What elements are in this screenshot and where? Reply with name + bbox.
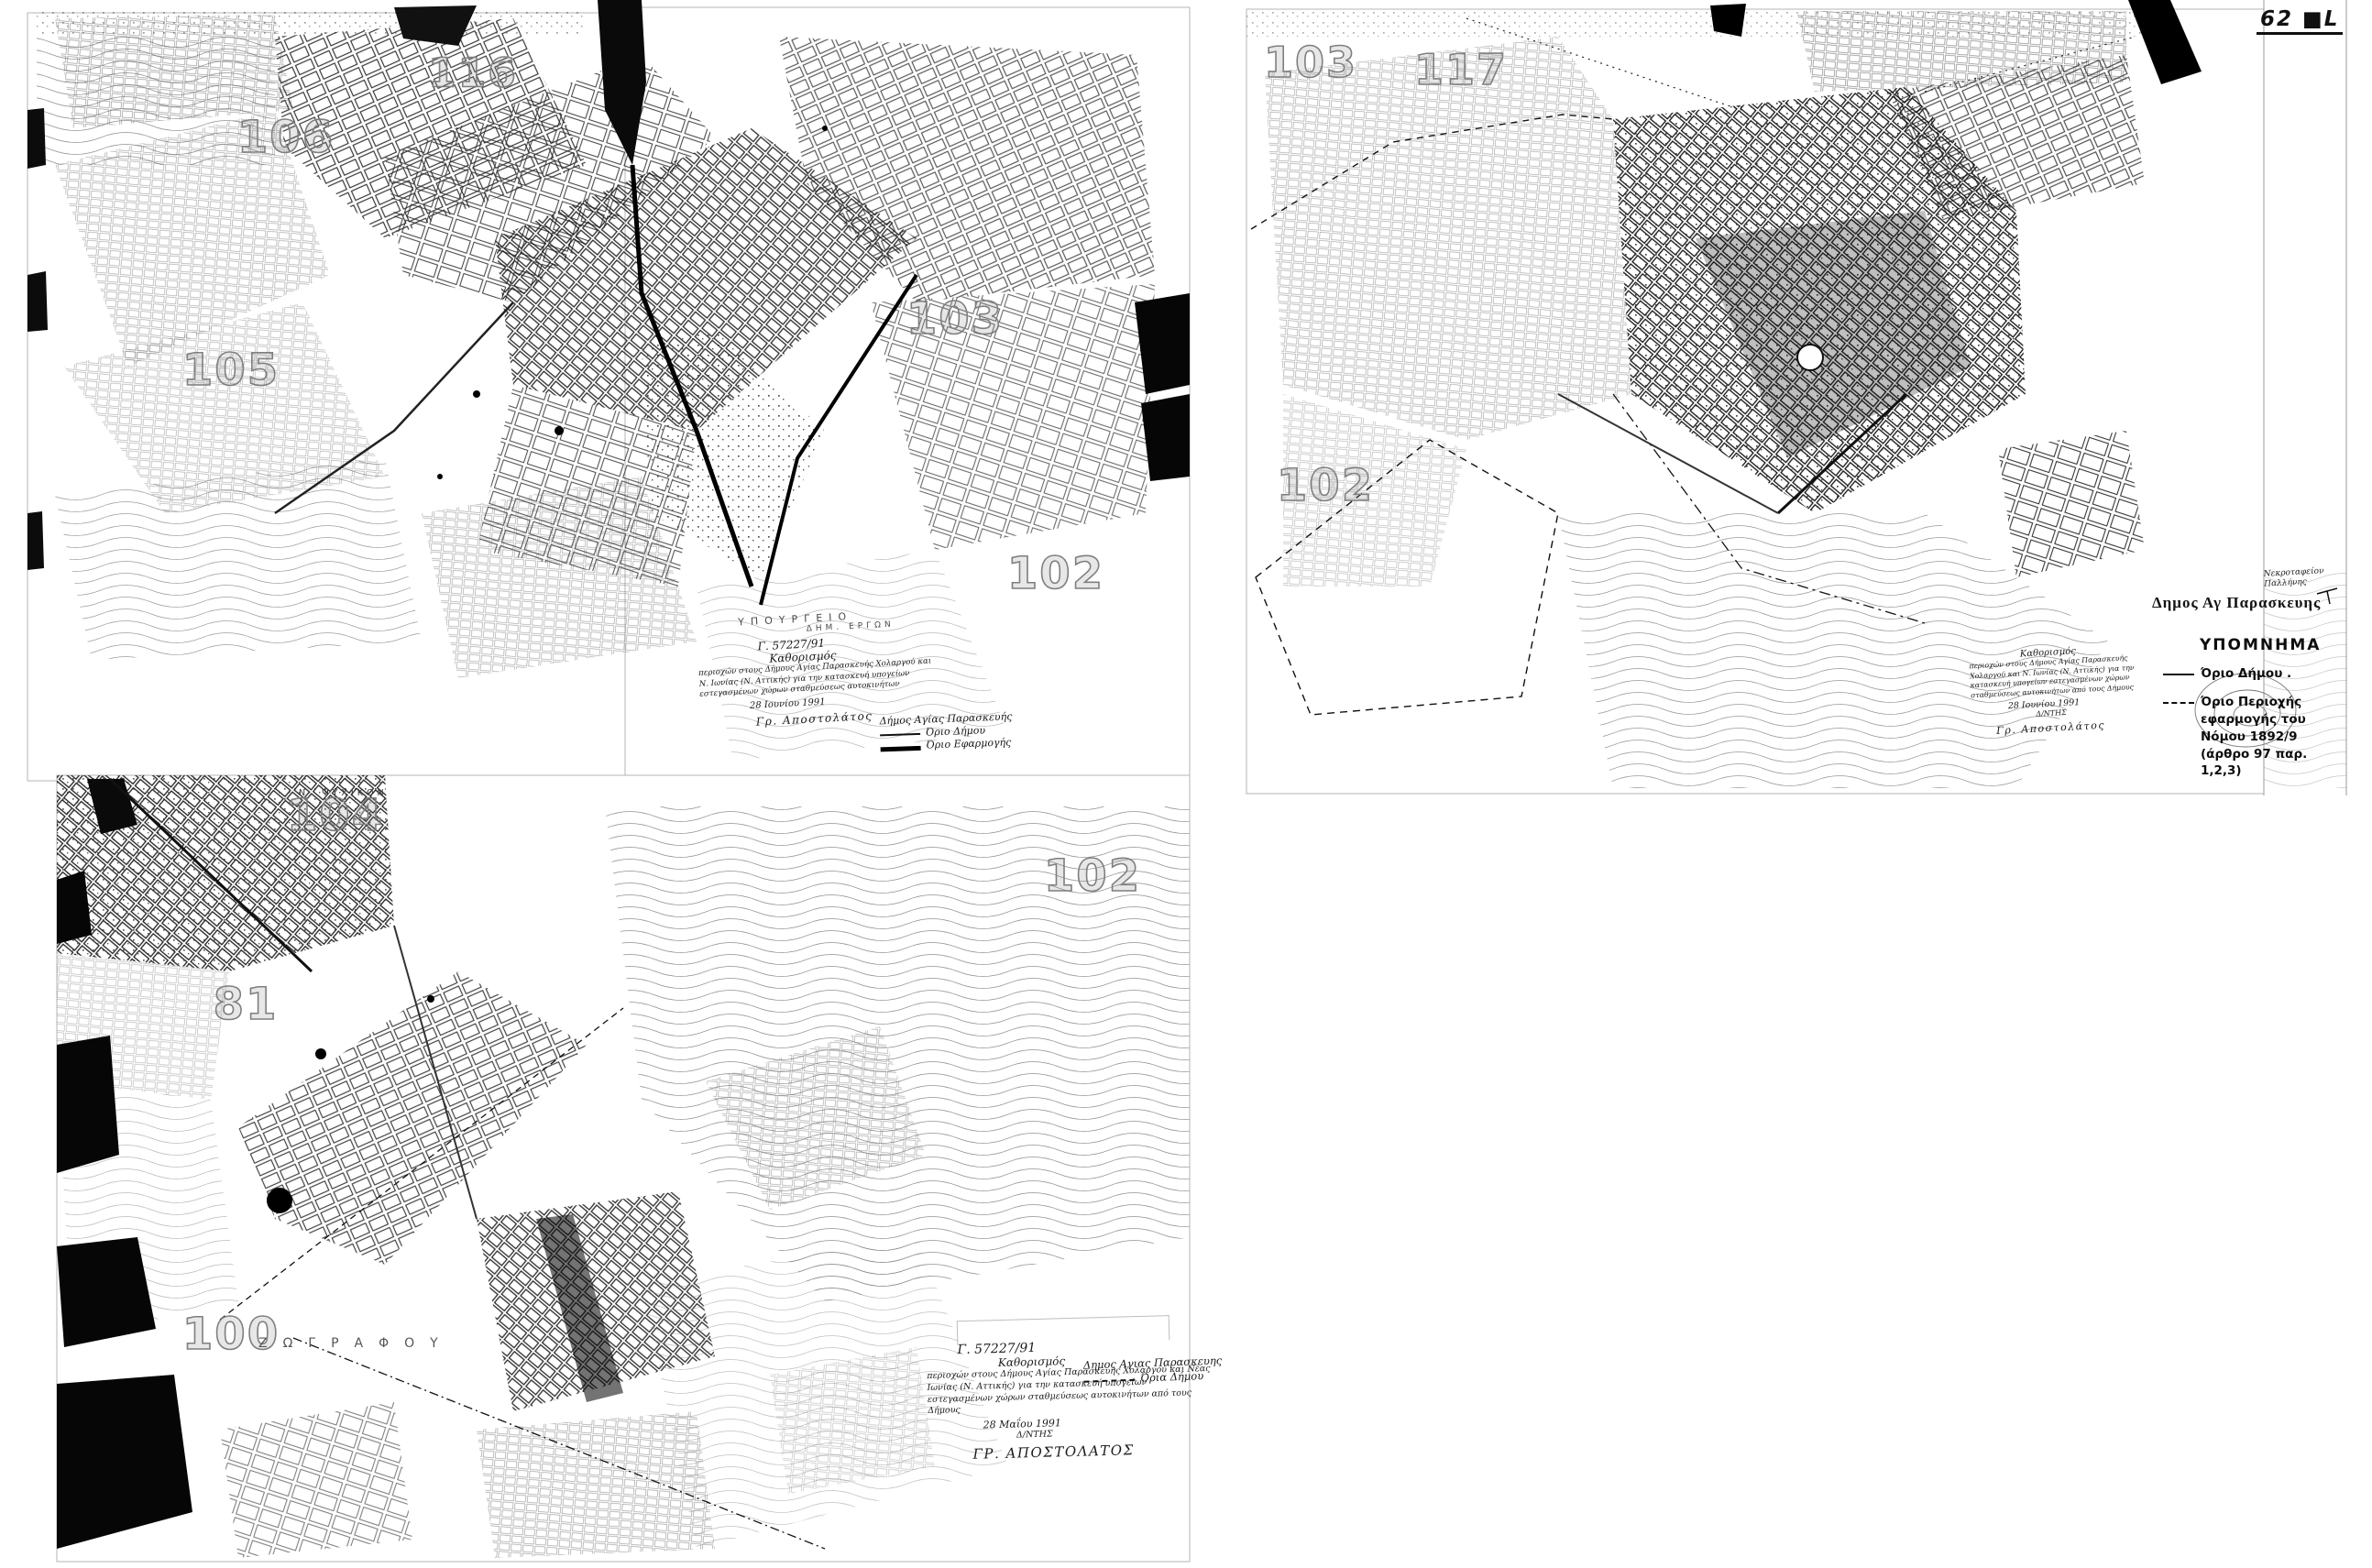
solid-line-symbol — [880, 733, 920, 737]
sheet-number-106: 106 — [237, 112, 335, 163]
approval-stamp-right-map: Καθορισμός περιοχών στους Δήμους Αγίας Π… — [1969, 642, 2161, 739]
legend-item-law-area-boundary: Όριο Περιοχής εφαρμογής του Νόμου 1892/9… — [2163, 694, 2343, 780]
legend-item-label: Όριο Δήμου . — [2201, 665, 2318, 683]
sheet-number-81: 81 — [214, 979, 279, 1030]
sheet-number-116: 116 — [428, 50, 518, 97]
legend: ΥΠΟΜΝΗΜΑ Όριο Δήμου . Όριο Περιοχής εφαρ… — [2163, 636, 2343, 780]
legend-title: ΥΠΟΜΝΗΜΑ — [2200, 636, 2343, 654]
map-scan-artwork — [0, 0, 2372, 1568]
sheet-number-117: 117 — [1414, 45, 1508, 94]
zografou-label: ΖΩΓΡΑΦΟΥ — [258, 1336, 454, 1351]
stamp-body-text: περιοχών στους Δήμους Αγίας Παρασκευής Χ… — [1969, 652, 2158, 701]
ministry-approval-stamp: ΥΠΟΥΡΓΕΙΟ ΔΗΜ. ΕΡΓΩΝ Γ. 57227/91 Καθορισ… — [696, 606, 941, 730]
dashed-line-symbol — [2163, 702, 2194, 704]
heavy-line-symbol — [881, 746, 921, 752]
sheet-number-103-right: 103 — [1264, 38, 1357, 87]
sheet-number-100: 100 — [182, 1309, 280, 1360]
solid-line-symbol — [2163, 674, 2194, 675]
inline-legend-item-label: Όριο Δήμου — [926, 724, 986, 738]
municipality-label: Δημος Αγ Παρασκευης — [2152, 594, 2321, 612]
legend-item-municipal-boundary: Όριο Δήμου . — [2163, 665, 2343, 683]
approval-stamp-bottom-map: Γ. 57227/91 Καθορισμός περιοχών στους Δή… — [926, 1336, 1213, 1464]
sheet-number-103-left: 103 — [906, 293, 1004, 345]
sheet-number-102-left: 102 — [1007, 548, 1104, 599]
map-index-corner-label: 62 ■L — [2257, 7, 2343, 35]
stamp-body-text: περιοχών στους Δήμους Αγίας Παρασκευής Χ… — [927, 1364, 1212, 1418]
n-psychiko-label: Ν. ΨΥΧΙΚΟΝ — [299, 788, 388, 798]
sheet-number-102-right: 102 — [1277, 460, 1374, 511]
cemetery-label: Νεκροταφείον Παλλήνης — [2263, 566, 2324, 590]
legend-item-label: Όριο Περιοχής εφαρμογής του Νόμου 1892/9… — [2201, 694, 2318, 780]
scanned-map-page: 106 116 105 103 102 103 117 102 104 81 1… — [0, 0, 2372, 1568]
sheet-number-102-bottom: 102 — [1044, 850, 1141, 902]
sheet-number-105: 105 — [182, 345, 280, 396]
